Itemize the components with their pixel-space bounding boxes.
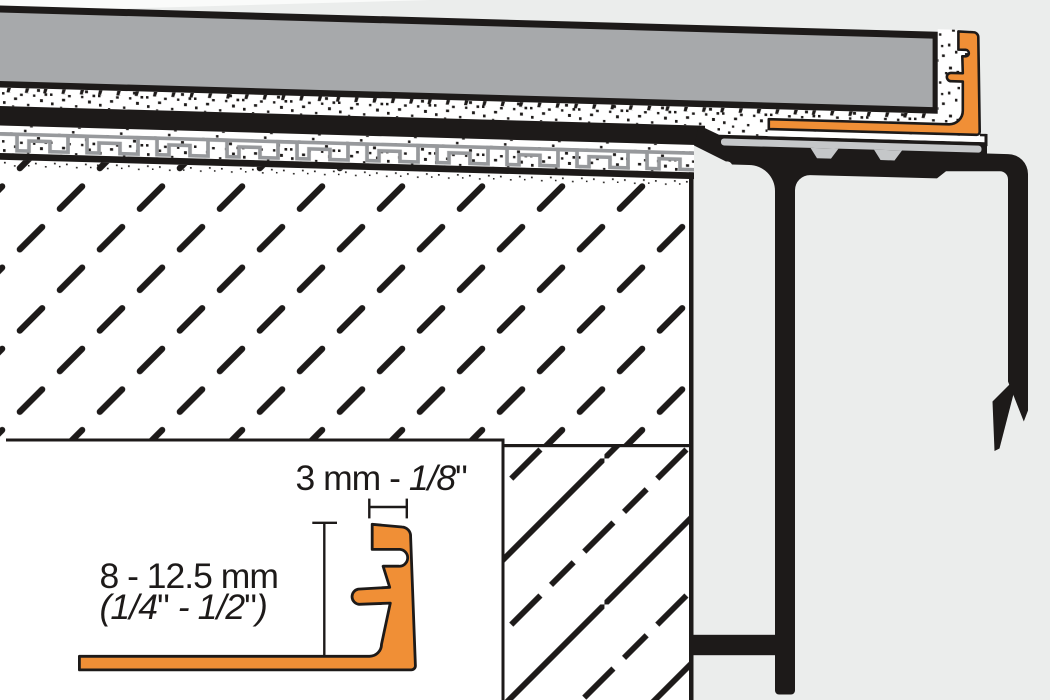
svg-text:(1/4" - 1/2"): (1/4" - 1/2") (100, 587, 267, 627)
svg-text:3 mm - 1/8": 3 mm - 1/8" (296, 458, 468, 498)
